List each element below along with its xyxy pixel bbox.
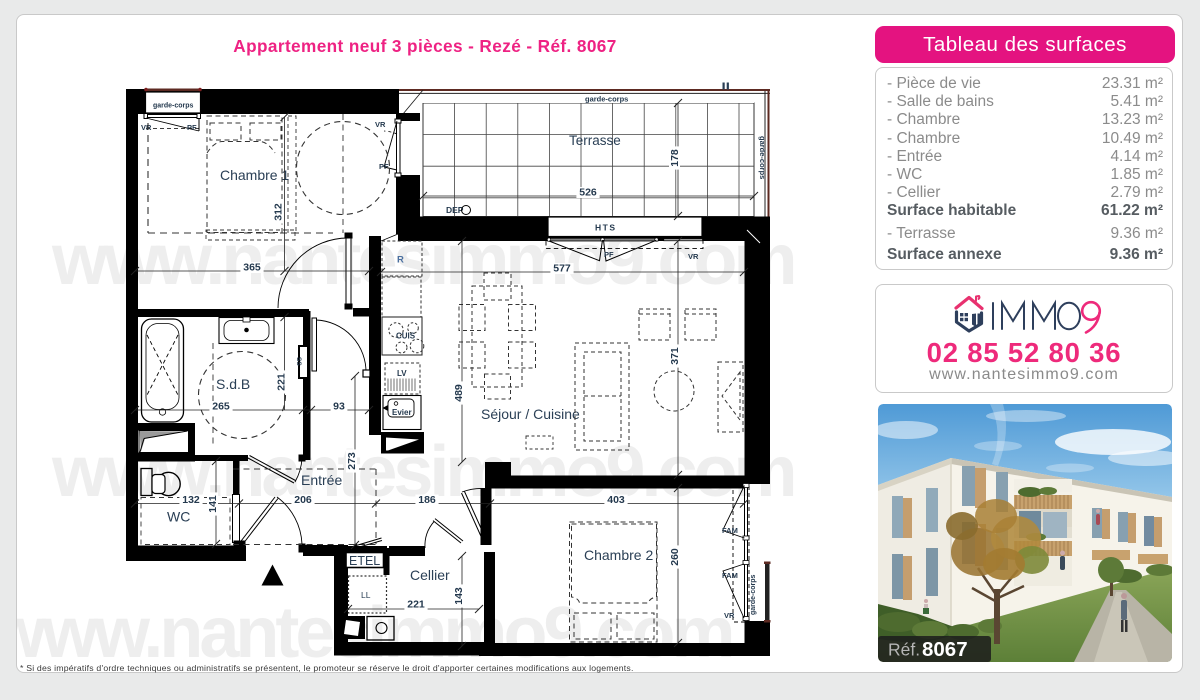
svg-text:265: 265: [212, 401, 230, 413]
svg-text:FAM: FAM: [722, 571, 738, 580]
svg-text:garde-corps: garde-corps: [585, 95, 628, 104]
svg-text:VR: VR: [141, 123, 152, 132]
svg-text:WC: WC: [167, 509, 190, 525]
svg-text:143: 143: [453, 587, 465, 605]
svg-text:526: 526: [579, 187, 597, 199]
svg-text:PF: PF: [379, 162, 389, 171]
svg-text:garde-corps: garde-corps: [758, 136, 767, 179]
svg-text:Séjour / Cuisine: Séjour / Cuisine: [481, 406, 580, 422]
svg-text:312: 312: [273, 203, 285, 221]
svg-text:260: 260: [669, 548, 681, 566]
svg-text:PF: PF: [187, 123, 197, 132]
svg-text:Evier: Evier: [392, 408, 412, 417]
svg-text:FAM: FAM: [722, 526, 738, 535]
svg-text:Chambre 2: Chambre 2: [584, 547, 653, 563]
svg-text:R: R: [397, 255, 404, 266]
svg-text:206: 206: [294, 494, 312, 506]
svg-text:PF: PF: [604, 250, 614, 259]
svg-text:Entrée: Entrée: [301, 472, 342, 488]
svg-text:garde-corps: garde-corps: [153, 103, 194, 110]
svg-text:CUIS: CUIS: [396, 332, 416, 341]
svg-text:221: 221: [276, 373, 288, 391]
svg-text:Réf.: Réf.: [888, 640, 920, 660]
svg-text:Terrasse: Terrasse: [569, 133, 621, 148]
svg-text:221: 221: [407, 599, 425, 611]
svg-text:SS: SS: [295, 357, 302, 366]
svg-text:132: 132: [182, 494, 200, 506]
svg-text:371: 371: [669, 347, 681, 365]
svg-text:ETEL: ETEL: [349, 554, 380, 568]
svg-text:Chambre 1: Chambre 1: [220, 167, 289, 183]
svg-text:365: 365: [243, 262, 261, 274]
svg-text:273: 273: [346, 452, 358, 470]
svg-text:141: 141: [207, 495, 219, 513]
svg-text:HTS: HTS: [595, 223, 617, 233]
svg-text:www.nantesimmo9.com: www.nantesimmo9.com: [0, 593, 732, 673]
svg-text:LL: LL: [361, 590, 371, 600]
svg-text:garde-corps: garde-corps: [750, 574, 757, 615]
svg-text:LV: LV: [397, 369, 407, 378]
svg-text:186: 186: [418, 494, 436, 506]
svg-text:489: 489: [453, 384, 465, 402]
svg-text:178: 178: [669, 149, 681, 167]
svg-text:VR: VR: [724, 611, 735, 620]
svg-text:Cellier: Cellier: [410, 567, 450, 583]
svg-text:577: 577: [553, 263, 571, 275]
svg-text:8067: 8067: [922, 638, 968, 661]
svg-text:403: 403: [607, 494, 625, 506]
svg-text:93: 93: [333, 401, 345, 413]
svg-text:VR: VR: [375, 120, 386, 129]
svg-text:S.d.B: S.d.B: [216, 376, 250, 392]
svg-text:VR: VR: [688, 252, 699, 261]
